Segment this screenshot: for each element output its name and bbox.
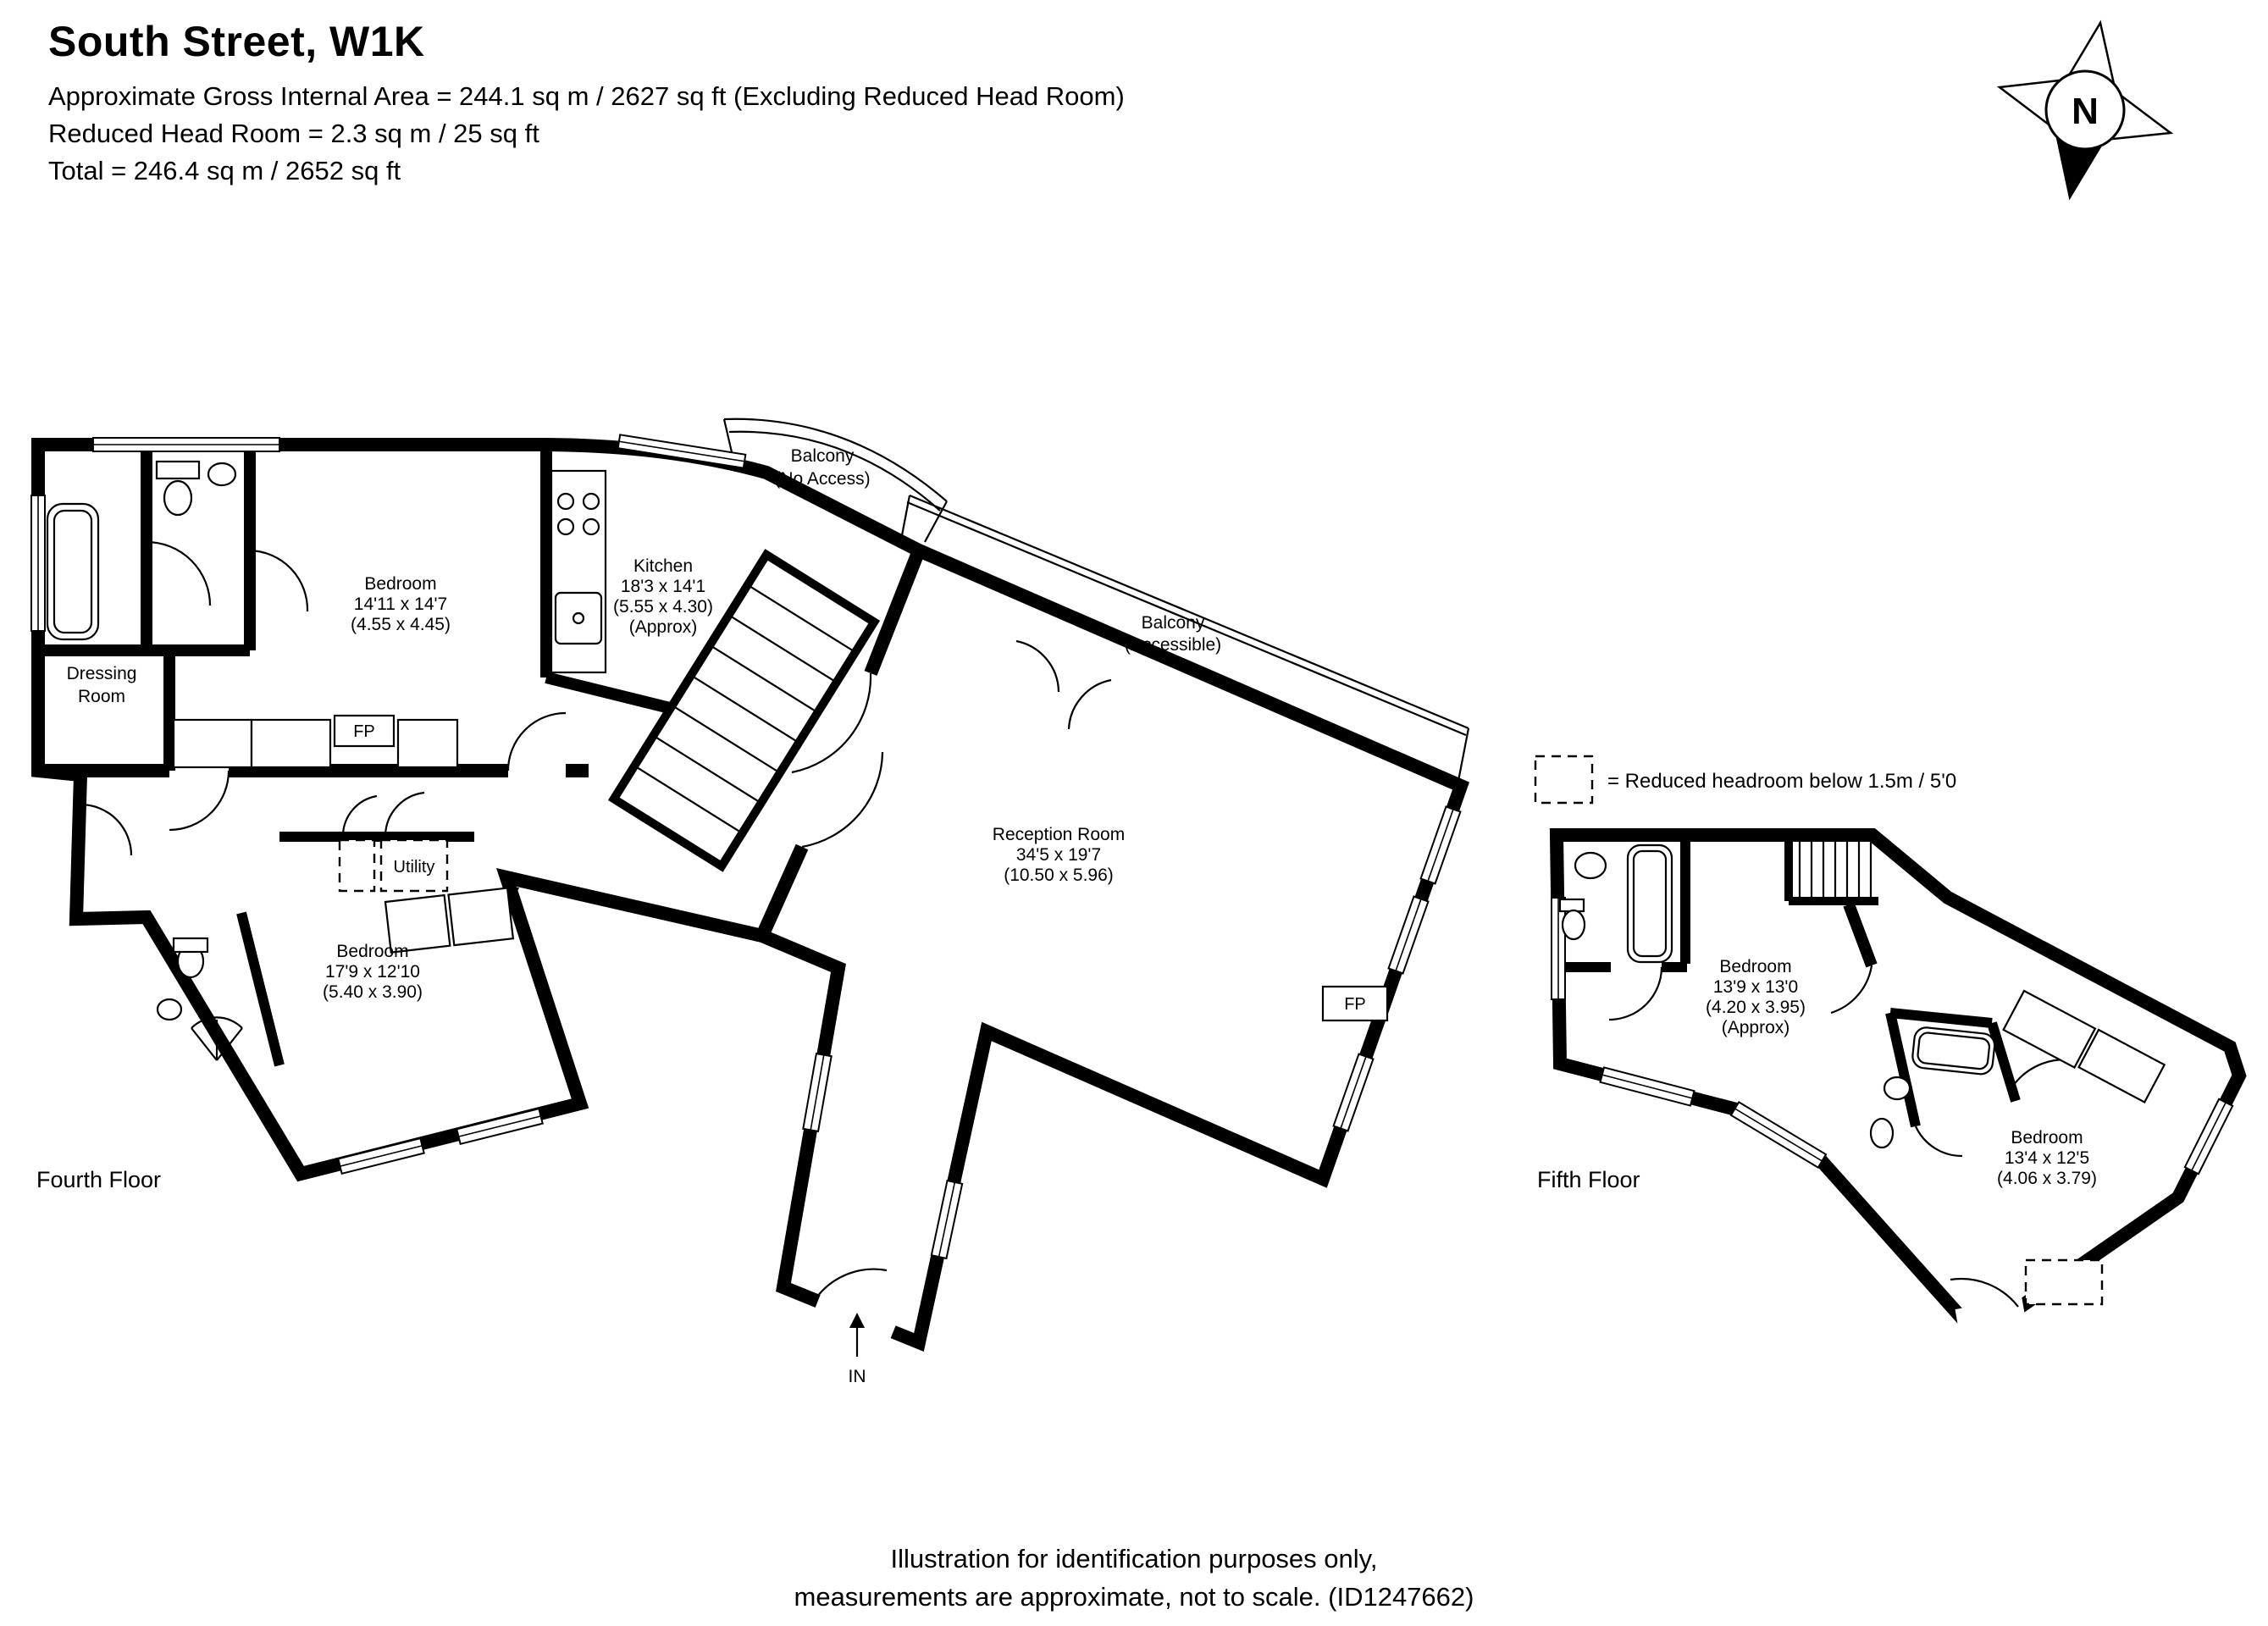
bedroom-front-size-imperial: 14'11 x 14'7 xyxy=(354,595,447,614)
reduced-headroom-area xyxy=(2026,1260,2102,1304)
fifth-bedroom-front-size-imperial: 13'9 x 13'0 xyxy=(1713,977,1798,997)
legend-label: = Reduced headroom below 1.5m / 5'0 xyxy=(1607,770,1956,793)
dressing-room-label: Dressing xyxy=(67,664,137,683)
fifth-floor-plan: = Reduced headroom below 1.5m / 5'0 xyxy=(1535,756,2239,1330)
kitchen-approx-note: (Approx) xyxy=(629,617,698,637)
fifth-bedroom-rear-size-imperial: 13'4 x 12'5 xyxy=(2005,1148,2089,1168)
reception-size-imperial: 34'5 x 19'7 xyxy=(1016,845,1101,865)
disclaimer-line1: Illustration for identification purposes… xyxy=(0,1540,2268,1578)
bedroom-rear-label: Bedroom xyxy=(336,942,408,961)
fifth-bedroom-rear-size-metric: (4.06 x 3.79) xyxy=(1997,1169,2097,1188)
reception-label: Reception Room xyxy=(993,825,1125,844)
bedroom-rear-size-metric: (5.40 x 3.90) xyxy=(323,982,423,1002)
kitchen-size-imperial: 18'3 x 14'1 xyxy=(621,577,705,596)
utility-label: Utility xyxy=(394,858,435,877)
fourth-floor-label: Fourth Floor xyxy=(36,1167,161,1192)
kitchen-counter xyxy=(551,471,606,672)
reception-size-metric: (10.50 x 5.96) xyxy=(1004,866,1114,885)
kitchen-label: Kitchen xyxy=(633,556,693,576)
fireplace-reception-label: FP xyxy=(1344,995,1366,1014)
fireplace-bedroom-label: FP xyxy=(353,722,375,741)
bedroom-front-size-metric: (4.55 x 4.45) xyxy=(351,615,451,634)
balcony-no-access-label2: (No Access) xyxy=(774,469,870,489)
fifth-bedroom-front-size-metric: (4.20 x 3.95) xyxy=(1706,998,1806,1017)
bedroom-rear-size-imperial: 17'9 x 12'10 xyxy=(325,962,420,982)
floorplan-canvas: N xyxy=(0,0,2268,1626)
compass-north-label: N xyxy=(2072,91,2099,132)
reduced-headroom-legend: = Reduced headroom below 1.5m / 5'0 xyxy=(1535,756,1956,803)
entrance-in-label: IN xyxy=(849,1367,866,1386)
floorplan-page: South Street, W1K Approximate Gross Inte… xyxy=(0,0,2268,1626)
disclaimer-line2: measurements are approximate, not to sca… xyxy=(0,1578,2268,1616)
balcony-no-access-label: Balcony xyxy=(791,446,855,466)
fifth-bedroom-front-approx-note: (Approx) xyxy=(1722,1018,1790,1037)
balcony-accessible-label: Balcony xyxy=(1142,613,1205,633)
balcony-accessible-label2: (Accessible) xyxy=(1125,635,1221,655)
fifth-floor-label: Fifth Floor xyxy=(1537,1167,1640,1192)
kitchen-size-metric: (5.55 x 4.30) xyxy=(613,597,713,617)
fifth-bedroom-front-label: Bedroom xyxy=(1719,957,1791,976)
north-compass-icon: N xyxy=(2000,23,2171,197)
dressing-room-label2: Room xyxy=(78,687,125,706)
legend-dashed-box xyxy=(1535,756,1592,803)
fourth-floor-plan: Balcony (No Access) Balcony (Accessible)… xyxy=(31,419,1469,1386)
bedroom-front-label: Bedroom xyxy=(364,574,436,594)
disclaimer: Illustration for identification purposes… xyxy=(0,1540,2268,1616)
fifth-bedroom-rear-label: Bedroom xyxy=(2011,1128,2083,1148)
